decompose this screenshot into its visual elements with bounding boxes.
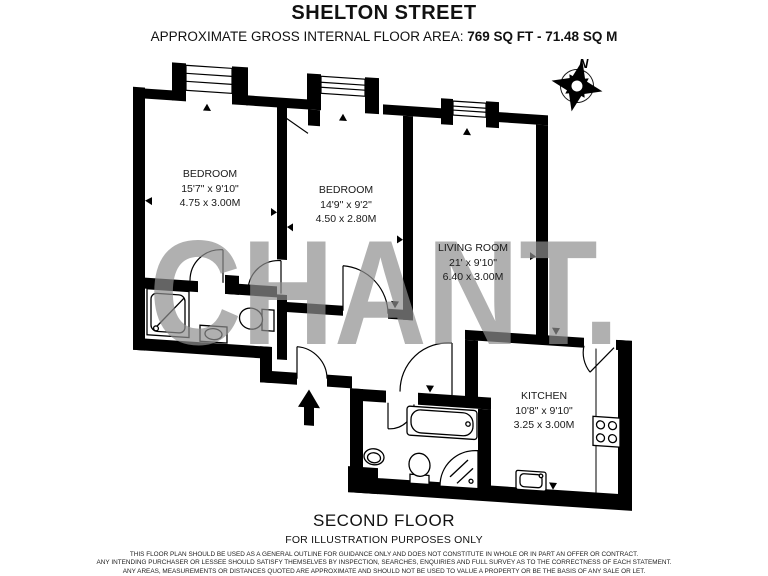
corner-shower xyxy=(440,448,478,489)
compass-rose: N xyxy=(546,55,608,117)
disclaimer-line: THIS FLOOR PLAN SHOULD BE USED AS A GENE… xyxy=(0,551,768,559)
bay-pillar xyxy=(307,73,321,110)
room-dim-imperial: 15'7" x 9'10" xyxy=(180,182,241,197)
room-name: LIVING ROOM xyxy=(438,241,508,256)
toilet xyxy=(409,453,430,485)
bay-pillar xyxy=(441,98,453,125)
room-dim-imperial: 14'9" x 9'2" xyxy=(316,198,377,213)
kitchen-sink xyxy=(516,470,546,491)
illustration-note: FOR ILLUSTRATION PURPOSES ONLY xyxy=(0,534,768,546)
wall-segment xyxy=(327,375,352,389)
wall-segment xyxy=(478,409,491,490)
room-dim-metric: 3.25 x 3.00M xyxy=(514,418,575,433)
footer: SECOND FLOOR FOR ILLUSTRATION PURPOSES O… xyxy=(0,511,768,576)
room-name: KITCHEN xyxy=(514,389,575,404)
bay-pillar xyxy=(365,77,379,114)
wall-segment xyxy=(383,104,441,118)
room-label-bedroom-1: BEDROOM 15'7" x 9'10" 4.75 x 3.00M xyxy=(180,167,241,211)
compass-north-label: N xyxy=(579,56,589,71)
wall-segment xyxy=(350,388,363,481)
living-room-window xyxy=(453,101,486,117)
bathtub xyxy=(407,406,477,440)
disclaimer-line: ANY AREAS, MEASUREMENTS OR DISTANCES QUO… xyxy=(0,568,768,576)
entrance-arrow xyxy=(298,389,320,426)
room-label-kitchen: KITCHEN 10'8" x 9'10" 3.25 x 3.00M xyxy=(514,389,575,433)
wall-segment xyxy=(497,112,548,125)
bay-pillar xyxy=(172,62,186,101)
room-dim-imperial: 10'8" x 9'10" xyxy=(514,404,575,419)
bedroom1-window xyxy=(186,65,232,93)
room-dim-metric: 4.75 x 3.00M xyxy=(180,196,241,211)
disclaimer-line: ANY INTENDING PURCHASER OR LESSEE SHOULD… xyxy=(0,559,768,567)
wall-segment xyxy=(246,95,307,109)
room-name: BEDROOM xyxy=(316,183,377,198)
bedroom2-window xyxy=(321,76,365,96)
room-name: BEDROOM xyxy=(180,167,241,182)
bay-pillar xyxy=(232,66,248,105)
floor-name: SECOND FLOOR xyxy=(0,511,768,531)
room-label-living-room: LIVING ROOM 21' x 9'10" 6.40 x 3.00M xyxy=(438,241,508,285)
bedroom2-corner-door xyxy=(286,118,308,133)
watermark-text: CHANT. xyxy=(149,209,619,376)
sink xyxy=(364,448,384,465)
wall-stub xyxy=(308,109,320,126)
room-dim-metric: 4.50 x 2.80M xyxy=(316,212,377,227)
floor-plan-page: { "header": { "title": "SHELTON STREET",… xyxy=(0,0,768,576)
floor-plan-drawing: CHANT. N xyxy=(0,0,768,576)
room-dim-metric: 6.40 x 3.00M xyxy=(438,270,508,285)
disclaimer: THIS FLOOR PLAN SHOULD BE USED AS A GENE… xyxy=(0,551,768,576)
room-label-bedroom-2: BEDROOM 14'9" x 9'2" 4.50 x 2.80M xyxy=(316,183,377,227)
wall-segment xyxy=(133,87,145,351)
hob xyxy=(593,416,620,447)
bay-pillar xyxy=(486,101,499,128)
room-dim-imperial: 21' x 9'10" xyxy=(438,256,508,271)
